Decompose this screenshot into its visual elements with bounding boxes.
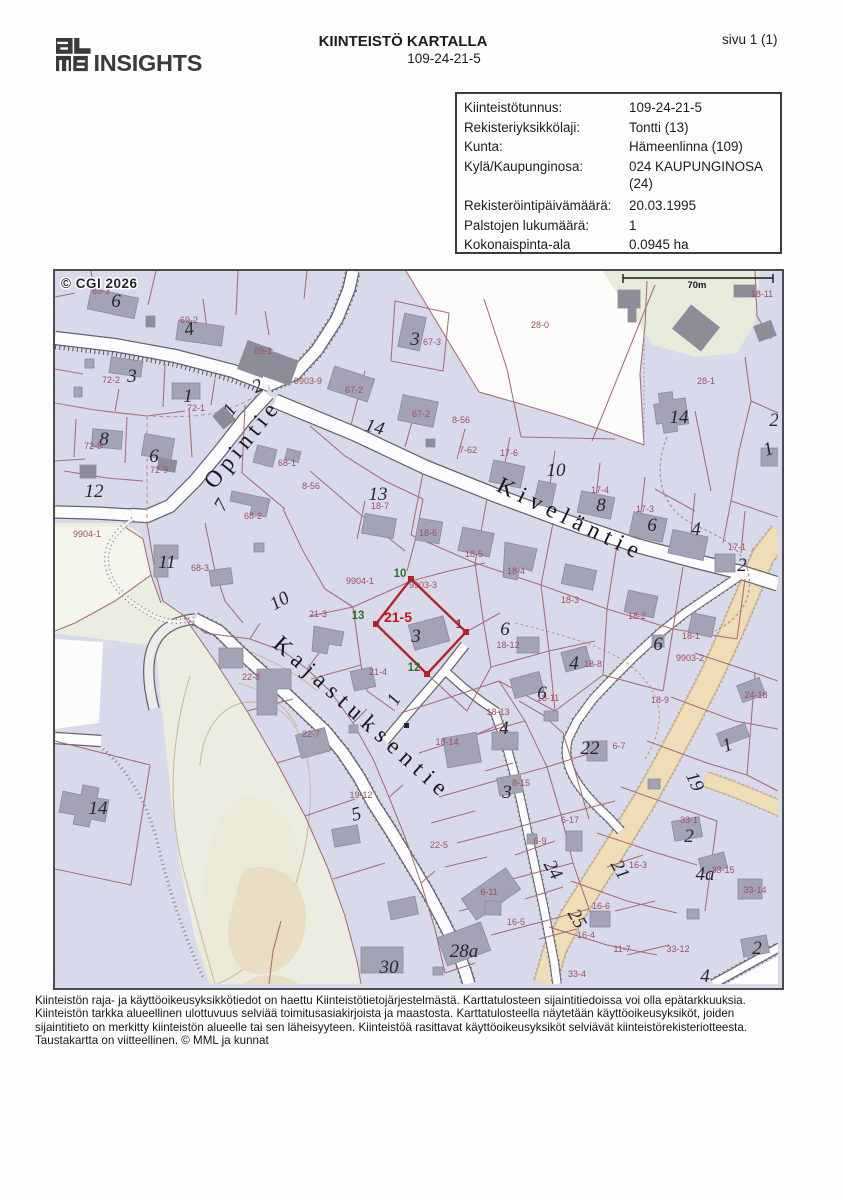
- svg-text:33-12: 33-12: [666, 944, 689, 954]
- svg-text:2: 2: [684, 826, 694, 847]
- svg-text:33-15: 33-15: [711, 865, 734, 875]
- svg-text:18-8: 18-8: [584, 659, 602, 669]
- svg-text:10: 10: [266, 587, 293, 615]
- svg-text:6-17: 6-17: [561, 815, 579, 825]
- svg-text:11-7: 11-7: [613, 944, 630, 954]
- svg-text:18-6: 18-6: [419, 528, 437, 538]
- svg-text:6: 6: [500, 619, 510, 640]
- svg-text:18-2: 18-2: [628, 611, 646, 621]
- svg-text:3: 3: [501, 782, 512, 803]
- svg-text:12: 12: [85, 481, 105, 502]
- svg-text:19-12: 19-12: [349, 790, 372, 800]
- svg-text:18-12: 18-12: [496, 640, 519, 650]
- svg-text:69-1: 69-1: [254, 346, 272, 356]
- svg-text:22-7: 22-7: [302, 729, 320, 739]
- svg-text:70m: 70m: [687, 280, 706, 291]
- svg-text:2: 2: [737, 555, 747, 576]
- svg-text:72-2: 72-2: [102, 375, 120, 385]
- svg-text:10: 10: [394, 568, 407, 580]
- svg-text:18-1: 18-1: [682, 631, 700, 641]
- svg-text:22-5: 22-5: [430, 840, 448, 850]
- svg-text:17-3: 17-3: [636, 504, 654, 514]
- svg-text:21-5: 21-5: [384, 609, 412, 625]
- svg-text:8: 8: [596, 495, 606, 516]
- svg-text:33-4: 33-4: [568, 969, 586, 979]
- svg-text:9903-9: 9903-9: [294, 376, 322, 386]
- svg-text:13: 13: [352, 610, 365, 622]
- svg-text:2: 2: [769, 410, 778, 431]
- svg-text:72-9: 72-9: [150, 465, 168, 475]
- svg-text:1: 1: [383, 690, 406, 709]
- svg-text:22-8: 22-8: [242, 672, 260, 682]
- svg-text:33-14: 33-14: [743, 885, 766, 895]
- svg-text:19: 19: [681, 769, 708, 796]
- svg-text:4: 4: [691, 519, 701, 540]
- svg-text:16-3: 16-3: [629, 860, 647, 870]
- svg-text:18-5: 18-5: [465, 549, 483, 559]
- svg-text:18-14: 18-14: [435, 737, 458, 747]
- svg-text:24-18: 24-18: [744, 690, 767, 700]
- svg-text:10: 10: [547, 460, 567, 481]
- svg-text:17-4: 17-4: [591, 485, 609, 495]
- svg-text:22: 22: [581, 738, 601, 759]
- svg-text:68-3: 68-3: [191, 563, 209, 573]
- svg-text:6-11: 6-11: [480, 887, 497, 897]
- svg-text:6: 6: [653, 634, 663, 655]
- svg-text:69-2: 69-2: [180, 315, 198, 325]
- svg-text:68-1: 68-1: [278, 458, 296, 468]
- svg-text:© CGI 2026: © CGI 2026: [61, 276, 137, 291]
- svg-text:9903-2: 9903-2: [676, 653, 704, 663]
- svg-text:16-6: 16-6: [592, 901, 610, 911]
- svg-text:6-7: 6-7: [612, 741, 625, 751]
- svg-text:11: 11: [158, 552, 176, 573]
- svg-text:3: 3: [410, 626, 421, 647]
- svg-text:16-5: 16-5: [507, 917, 525, 927]
- svg-text:8-56: 8-56: [302, 481, 320, 491]
- svg-text:21-3: 21-3: [309, 609, 327, 619]
- svg-text:18-13: 18-13: [486, 707, 509, 717]
- svg-text:18-4: 18-4: [507, 566, 525, 576]
- svg-text:33-1: 33-1: [680, 815, 698, 825]
- svg-text:8-56: 8-56: [452, 415, 470, 425]
- svg-text:2: 2: [752, 938, 762, 959]
- svg-text:28a: 28a: [450, 941, 479, 962]
- svg-text:28-0: 28-0: [531, 320, 549, 330]
- svg-text:7-62: 7-62: [459, 445, 477, 455]
- svg-text:18-9: 18-9: [651, 695, 669, 705]
- svg-text:14: 14: [670, 407, 690, 428]
- svg-text:1: 1: [456, 619, 463, 631]
- svg-text:4: 4: [499, 718, 509, 739]
- svg-text:67-3: 67-3: [423, 337, 441, 347]
- svg-text:5: 5: [349, 803, 364, 826]
- svg-text:17-6: 17-6: [500, 448, 518, 458]
- svg-text:67-2: 67-2: [412, 409, 430, 419]
- svg-text:3: 3: [126, 366, 137, 387]
- svg-text:18-3: 18-3: [561, 595, 579, 605]
- svg-text:9904-1: 9904-1: [346, 576, 374, 586]
- svg-text:30: 30: [379, 957, 400, 978]
- svg-text:72-8: 72-8: [84, 441, 102, 451]
- svg-text:4: 4: [569, 653, 579, 674]
- svg-text:18-11: 18-11: [751, 289, 773, 299]
- svg-text:9904-1: 9904-1: [73, 529, 101, 539]
- svg-text:14: 14: [89, 798, 109, 819]
- svg-text:4: 4: [700, 966, 710, 984]
- svg-text:6-9: 6-9: [533, 836, 546, 846]
- svg-text:6: 6: [111, 291, 121, 312]
- svg-text:3: 3: [409, 329, 420, 350]
- svg-text:16-4: 16-4: [577, 930, 595, 940]
- svg-text:18-11: 18-11: [537, 693, 559, 703]
- svg-text:6: 6: [149, 446, 159, 467]
- svg-text:67-2: 67-2: [345, 385, 363, 395]
- svg-text:28-1: 28-1: [697, 376, 715, 386]
- svg-text:8-15: 8-15: [512, 778, 530, 788]
- svg-text:6: 6: [647, 515, 657, 536]
- svg-text:21-4: 21-4: [369, 667, 387, 677]
- svg-text:72-1: 72-1: [187, 403, 205, 413]
- svg-text:68-2: 68-2: [244, 511, 262, 521]
- svg-text:7: 7: [210, 495, 234, 515]
- svg-text:17-1: 17-1: [728, 542, 746, 552]
- svg-text:18-7: 18-7: [371, 501, 389, 511]
- svg-text:12: 12: [408, 662, 421, 674]
